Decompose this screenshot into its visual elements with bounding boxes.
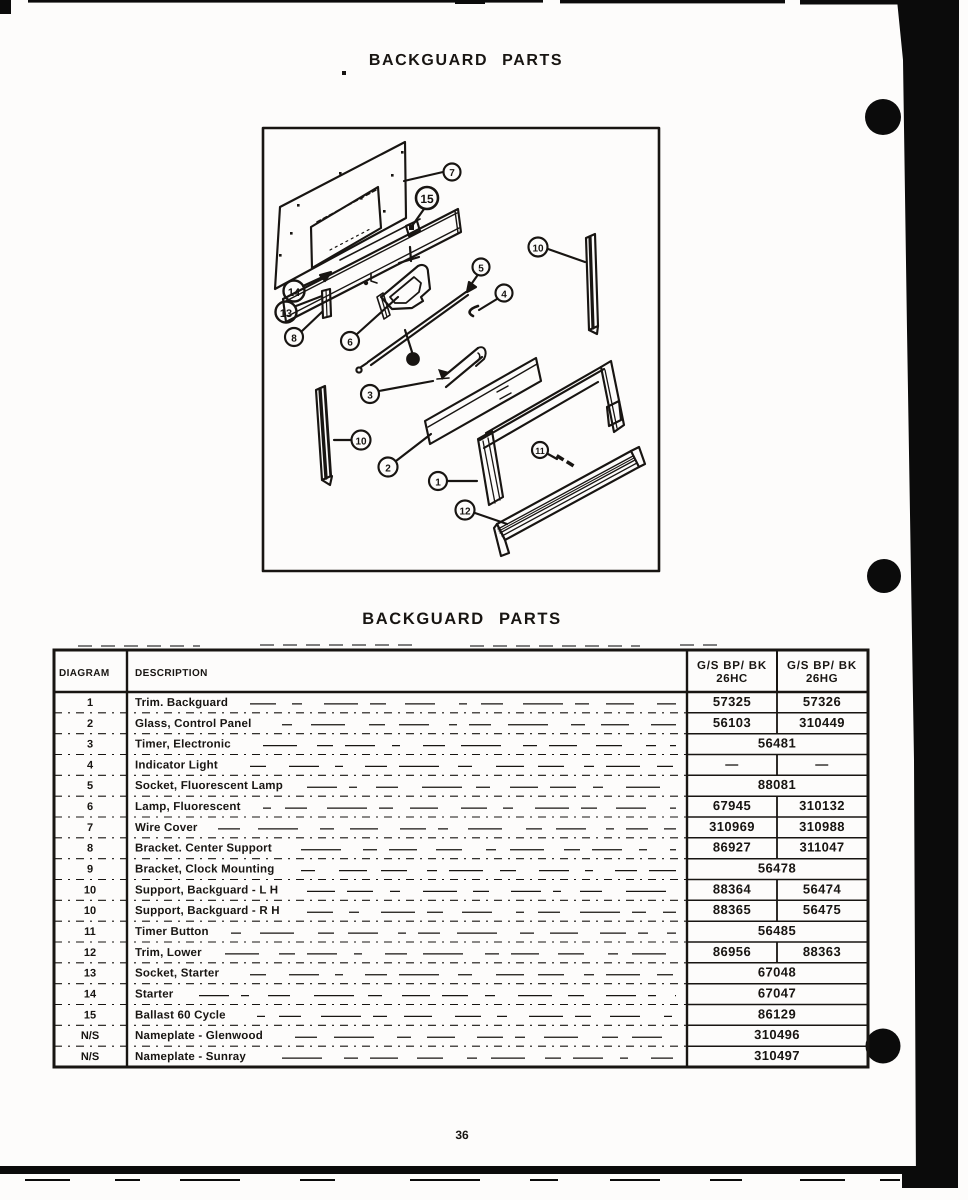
svg-text:Bracket, Clock Mounting: Bracket, Clock Mounting: [135, 864, 274, 876]
svg-text:Nameplate - Glenwood: Nameplate - Glenwood: [135, 1030, 263, 1042]
svg-text:1: 1: [87, 697, 93, 709]
svg-text:88365: 88365: [713, 902, 751, 917]
svg-text:10: 10: [532, 244, 544, 255]
svg-text:Indicator Light: Indicator Light: [135, 759, 218, 771]
svg-text:Socket, Starter: Socket, Starter: [135, 968, 219, 980]
svg-text:310132: 310132: [799, 798, 845, 813]
svg-text:88364: 88364: [713, 881, 752, 896]
svg-text:Socket, Fluorescent Lamp: Socket, Fluorescent Lamp: [135, 780, 283, 792]
svg-text:57325: 57325: [713, 694, 751, 709]
svg-text:56475: 56475: [803, 902, 841, 917]
svg-text:Trim. Backguard: Trim. Backguard: [135, 697, 228, 709]
svg-text:Support, Backguard - L H: Support, Backguard - L H: [135, 884, 278, 896]
svg-text:10: 10: [84, 905, 96, 917]
svg-text:Timer, Electronic: Timer, Electronic: [135, 739, 231, 751]
svg-text:Starter: Starter: [135, 989, 174, 1001]
svg-text:7: 7: [449, 168, 455, 179]
svg-text:310449: 310449: [799, 715, 845, 730]
svg-text:14: 14: [84, 989, 97, 1001]
svg-text:3: 3: [367, 391, 373, 402]
svg-text:N/S: N/S: [81, 1051, 99, 1063]
svg-text:26HC: 26HC: [716, 673, 747, 685]
svg-text:310969: 310969: [709, 819, 755, 834]
svg-text:Support, Backguard - R H: Support, Backguard - R H: [135, 905, 280, 917]
svg-text:310497: 310497: [754, 1048, 800, 1063]
svg-text:Timer Button: Timer Button: [135, 926, 209, 938]
svg-text:DIAGRAM: DIAGRAM: [59, 668, 110, 679]
svg-text:67945: 67945: [713, 798, 751, 813]
svg-text:N/S: N/S: [81, 1030, 99, 1042]
svg-text:6: 6: [347, 338, 353, 349]
svg-text:4: 4: [87, 759, 94, 771]
svg-text:12: 12: [84, 947, 96, 959]
svg-text:310496: 310496: [754, 1027, 800, 1042]
svg-text:15: 15: [420, 192, 434, 206]
svg-text:15: 15: [84, 1009, 96, 1021]
svg-text:DESCRIPTION: DESCRIPTION: [135, 668, 208, 679]
svg-text:13: 13: [280, 308, 292, 320]
svg-text:88363: 88363: [803, 944, 841, 959]
svg-text:BACKGUARD PARTS: BACKGUARD PARTS: [369, 52, 563, 69]
svg-text:310988: 310988: [799, 819, 845, 834]
svg-text:5: 5: [478, 264, 484, 275]
svg-text:2: 2: [385, 464, 391, 475]
svg-text:14: 14: [288, 287, 301, 299]
svg-text:8: 8: [291, 334, 297, 345]
svg-text:11: 11: [535, 446, 545, 456]
svg-text:86956: 86956: [713, 944, 751, 959]
svg-text:57326: 57326: [803, 694, 841, 709]
svg-text:Trim, Lower: Trim, Lower: [135, 947, 202, 959]
svg-text:56485: 56485: [758, 923, 796, 938]
svg-text:56478: 56478: [758, 861, 796, 876]
svg-text:G/S BP/ BK: G/S BP/ BK: [697, 660, 767, 672]
svg-text:—: —: [815, 756, 828, 771]
svg-text:26HG: 26HG: [806, 673, 838, 685]
svg-text:86129: 86129: [758, 1006, 796, 1021]
svg-text:56474: 56474: [803, 881, 842, 896]
svg-text:9: 9: [87, 864, 93, 876]
svg-text:6: 6: [87, 801, 93, 813]
svg-text:67048: 67048: [758, 965, 796, 980]
svg-text:7: 7: [87, 822, 93, 834]
svg-text:56481: 56481: [758, 736, 796, 751]
svg-text:3: 3: [87, 739, 93, 751]
svg-text:1: 1: [435, 478, 441, 489]
svg-text:36: 36: [455, 1128, 469, 1142]
svg-text:5: 5: [87, 780, 93, 792]
svg-text:Glass, Control Panel: Glass, Control Panel: [135, 718, 251, 730]
svg-text:Nameplate - Sunray: Nameplate - Sunray: [135, 1051, 246, 1063]
svg-text:88081: 88081: [758, 777, 796, 792]
svg-text:4: 4: [501, 290, 507, 301]
svg-text:8: 8: [87, 843, 93, 855]
svg-text:67047: 67047: [758, 986, 796, 1001]
svg-text:12: 12: [459, 507, 471, 518]
svg-text:86927: 86927: [713, 840, 751, 855]
svg-text:10: 10: [84, 884, 96, 896]
svg-text:Bracket. Center Support: Bracket. Center Support: [135, 843, 272, 855]
svg-text:BACKGUARD PARTS: BACKGUARD PARTS: [362, 610, 561, 628]
svg-text:10: 10: [355, 437, 367, 448]
svg-text:Ballast 60 Cycle: Ballast 60 Cycle: [135, 1009, 226, 1021]
svg-text:Lamp, Fluorescent: Lamp, Fluorescent: [135, 801, 241, 813]
svg-text:311047: 311047: [799, 840, 844, 855]
svg-text:13: 13: [84, 968, 96, 980]
svg-text:56103: 56103: [713, 715, 751, 730]
svg-text:—: —: [725, 756, 738, 771]
svg-text:11: 11: [84, 926, 96, 938]
svg-text:2: 2: [87, 718, 93, 730]
svg-text:G/S BP/ BK: G/S BP/ BK: [787, 660, 857, 672]
svg-text:Wire Cover: Wire Cover: [135, 822, 198, 834]
